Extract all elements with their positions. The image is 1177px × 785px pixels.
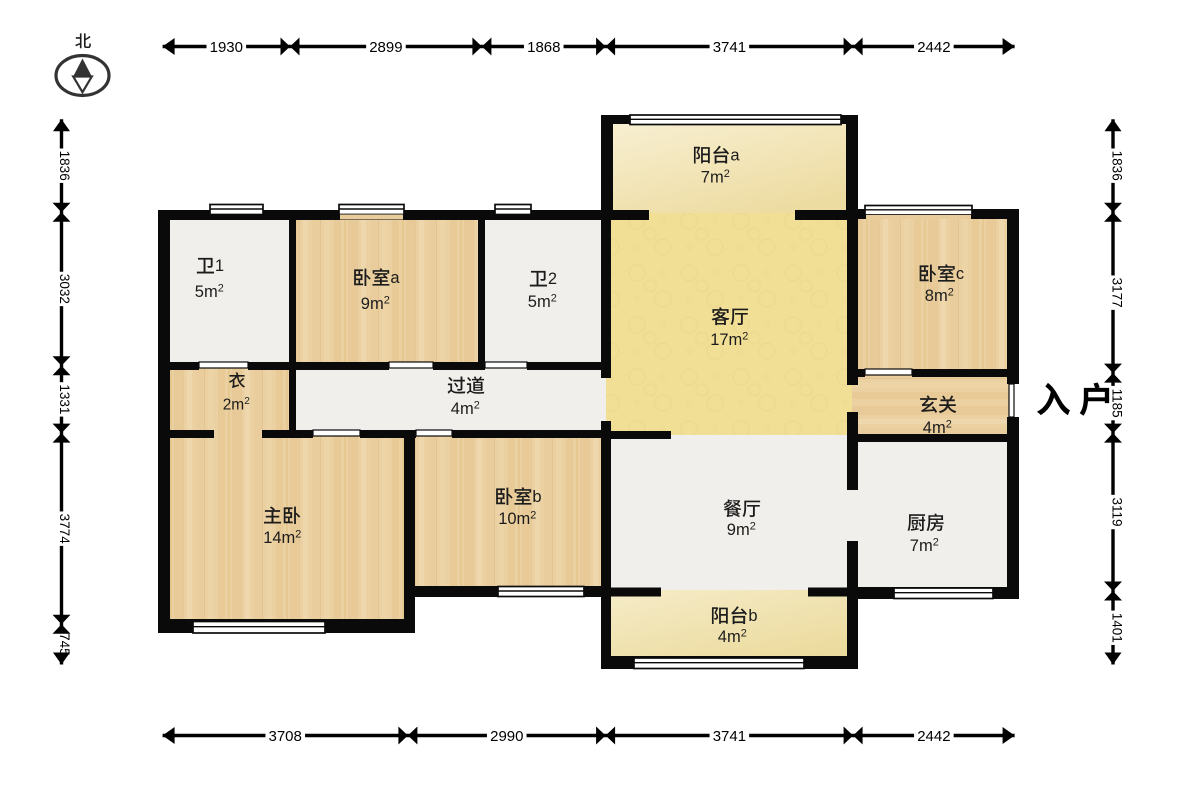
- svg-text:a: a: [390, 269, 400, 287]
- svg-text:2442: 2442: [917, 39, 950, 56]
- svg-text:2442: 2442: [917, 728, 950, 745]
- svg-text:3708: 3708: [269, 728, 302, 745]
- svg-text:745: 745: [57, 633, 72, 656]
- svg-text:3177: 3177: [1110, 278, 1125, 308]
- svg-text:3032: 3032: [57, 274, 72, 304]
- svg-text:a: a: [730, 146, 740, 164]
- svg-text:3774: 3774: [57, 514, 72, 545]
- svg-text:1331: 1331: [57, 384, 72, 414]
- svg-text:3741: 3741: [713, 39, 746, 56]
- svg-text:3119: 3119: [1110, 497, 1125, 526]
- svg-text:1836: 1836: [1110, 151, 1125, 181]
- svg-text:2899: 2899: [369, 39, 402, 56]
- svg-text:1836: 1836: [57, 151, 72, 181]
- svg-text:2990: 2990: [490, 728, 523, 745]
- svg-text:b: b: [748, 607, 757, 625]
- svg-text:1: 1: [215, 257, 224, 275]
- svg-text:c: c: [956, 265, 964, 283]
- svg-text:1868: 1868: [527, 39, 560, 56]
- svg-text:3741: 3741: [713, 728, 746, 745]
- svg-text:b: b: [532, 488, 541, 506]
- svg-text:1185: 1185: [1110, 389, 1125, 418]
- svg-text:1401: 1401: [1110, 613, 1125, 643]
- svg-text:2: 2: [548, 270, 557, 288]
- svg-text:1930: 1930: [210, 39, 243, 56]
